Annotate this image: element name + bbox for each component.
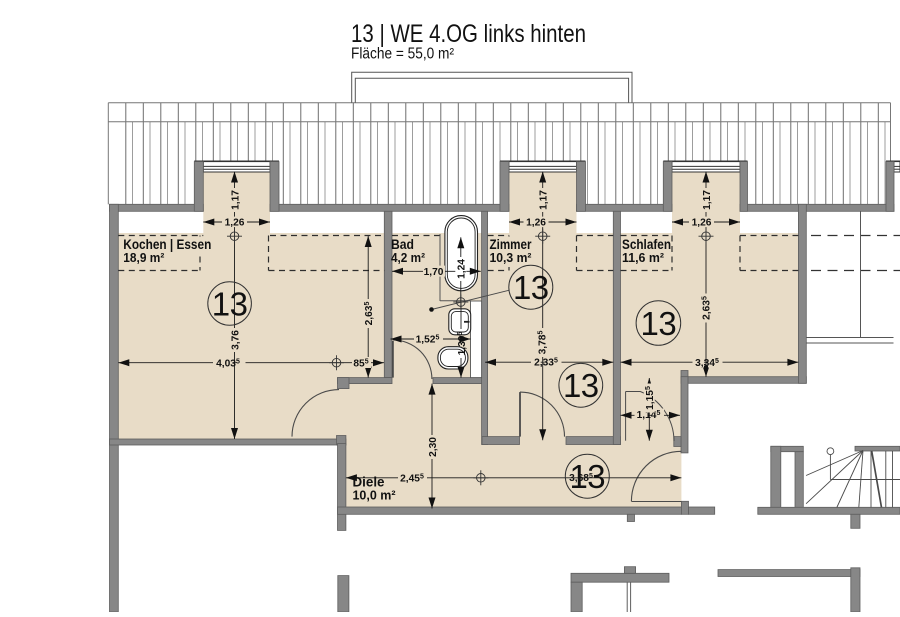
svg-text:1,17: 1,17: [539, 190, 550, 210]
svg-text:1,26: 1,26: [526, 218, 546, 229]
svg-text:1,70: 1,70: [424, 267, 444, 278]
svg-text:4,2 m²: 4,2 m²: [391, 251, 425, 265]
svg-text:Zimmer: Zimmer: [490, 236, 532, 252]
svg-text:Kochen | Essen: Kochen | Essen: [123, 236, 211, 252]
svg-text:2,30: 2,30: [428, 437, 439, 457]
svg-text:13: 13: [563, 367, 599, 404]
svg-text:1,17: 1,17: [702, 190, 713, 210]
svg-text:Diele: Diele: [353, 473, 385, 489]
svg-text:Schlafen: Schlafen: [622, 236, 671, 252]
svg-text:10,3 m²: 10,3 m²: [490, 251, 532, 265]
svg-text:1,26: 1,26: [225, 218, 245, 229]
svg-text:10,0 m²: 10,0 m²: [353, 489, 396, 503]
svg-text:3,76: 3,76: [230, 330, 241, 350]
svg-text:18,9 m²: 18,9 m²: [123, 251, 164, 265]
svg-text:13: 13: [569, 458, 605, 495]
svg-text:13: 13: [513, 269, 549, 306]
svg-text:1,24: 1,24: [457, 259, 468, 279]
svg-text:Fläche = 55,0 m²: Fläche = 55,0 m²: [351, 46, 454, 63]
svg-text:11,6 m²: 11,6 m²: [622, 251, 664, 265]
svg-text:13: 13: [641, 305, 677, 342]
svg-text:1,17: 1,17: [230, 190, 241, 210]
svg-text:13: 13: [212, 285, 248, 322]
svg-text:1,26: 1,26: [692, 218, 712, 229]
svg-text:Bad: Bad: [391, 236, 414, 252]
svg-text:13 | WE 4.OG links hinten: 13 | WE 4.OG links hinten: [351, 20, 586, 48]
